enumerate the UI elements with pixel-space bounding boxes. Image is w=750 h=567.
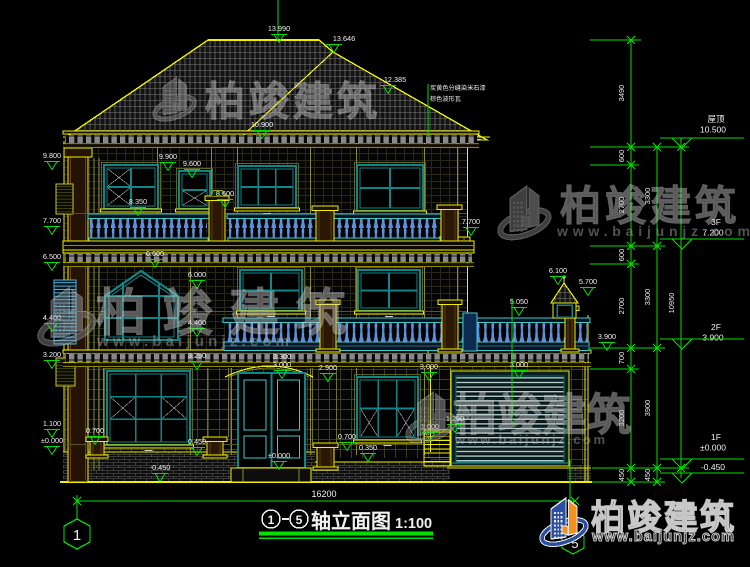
svg-text:3.200: 3.200 [43,350,61,359]
svg-text:13.990: 13.990 [268,24,290,33]
svg-text:3.000: 3.000 [273,360,291,369]
svg-text:6.000: 6.000 [188,270,206,279]
svg-text:8.350: 8.350 [129,197,147,206]
svg-text:13.646: 13.646 [333,34,355,43]
svg-text:2F: 2F [711,322,721,332]
svg-text:1: 1 [73,527,81,544]
svg-text:3490: 3490 [617,85,626,102]
svg-text:0.700: 0.700 [338,432,356,441]
svg-text:700: 700 [617,352,626,365]
svg-text:2700: 2700 [617,298,626,315]
svg-text:3300: 3300 [643,289,652,306]
svg-text:8.600: 8.600 [216,189,234,198]
svg-text:±0.000: ±0.000 [41,436,63,445]
svg-text:炭黄色分缝染米石漆: 炭黄色分缝染米石漆 [430,84,486,92]
svg-text:0.350: 0.350 [359,443,377,452]
svg-text:450: 450 [617,469,626,482]
svg-text:0.450: 0.450 [188,437,206,446]
svg-text:棕色波形瓦: 棕色波形瓦 [430,95,461,103]
svg-text:屋顶: 屋顶 [707,114,725,124]
svg-text:10.500: 10.500 [700,125,726,135]
svg-text:3.250: 3.250 [188,351,206,360]
svg-text:5: 5 [296,513,303,527]
svg-text:5.700: 5.700 [579,277,597,286]
svg-text:7.700: 7.700 [43,216,61,225]
svg-text:www.baijunjz.com: www.baijunjz.com [591,529,734,545]
svg-text:12.385: 12.385 [384,75,406,84]
svg-text:-0.450: -0.450 [150,463,171,472]
svg-text:-0.450: -0.450 [701,462,725,472]
svg-text:±0.000: ±0.000 [268,451,290,460]
svg-text:3.000: 3.000 [420,362,438,371]
svg-text:±0.000: ±0.000 [700,443,726,453]
svg-text:9.900: 9.900 [159,152,177,161]
svg-text:2.900: 2.900 [319,363,337,372]
svg-text:3900: 3900 [643,400,652,417]
svg-text:16200: 16200 [311,489,336,499]
svg-text:10950: 10950 [667,293,676,314]
svg-text:6.100: 6.100 [549,266,567,275]
svg-text:1.100: 1.100 [43,419,61,428]
svg-text:9.800: 9.800 [43,151,61,160]
svg-text:9.600: 9.600 [183,159,201,168]
svg-text:450: 450 [643,469,652,482]
svg-text:5.050: 5.050 [510,297,528,306]
svg-text:3.000: 3.000 [510,360,528,369]
svg-text:3.900: 3.900 [702,333,724,343]
svg-text:轴立面图: 轴立面图 [311,509,391,533]
svg-text:6.500: 6.500 [43,252,61,261]
svg-text:1: 1 [268,513,275,527]
svg-text:1:100: 1:100 [395,516,432,532]
svg-text:600: 600 [617,150,626,163]
svg-text:3.900: 3.900 [598,332,616,341]
svg-text:0.700: 0.700 [86,426,104,435]
svg-text:7.700: 7.700 [462,217,480,226]
svg-text:6.600: 6.600 [146,249,164,258]
svg-text:1F: 1F [711,432,721,442]
svg-text:600: 600 [617,249,626,262]
